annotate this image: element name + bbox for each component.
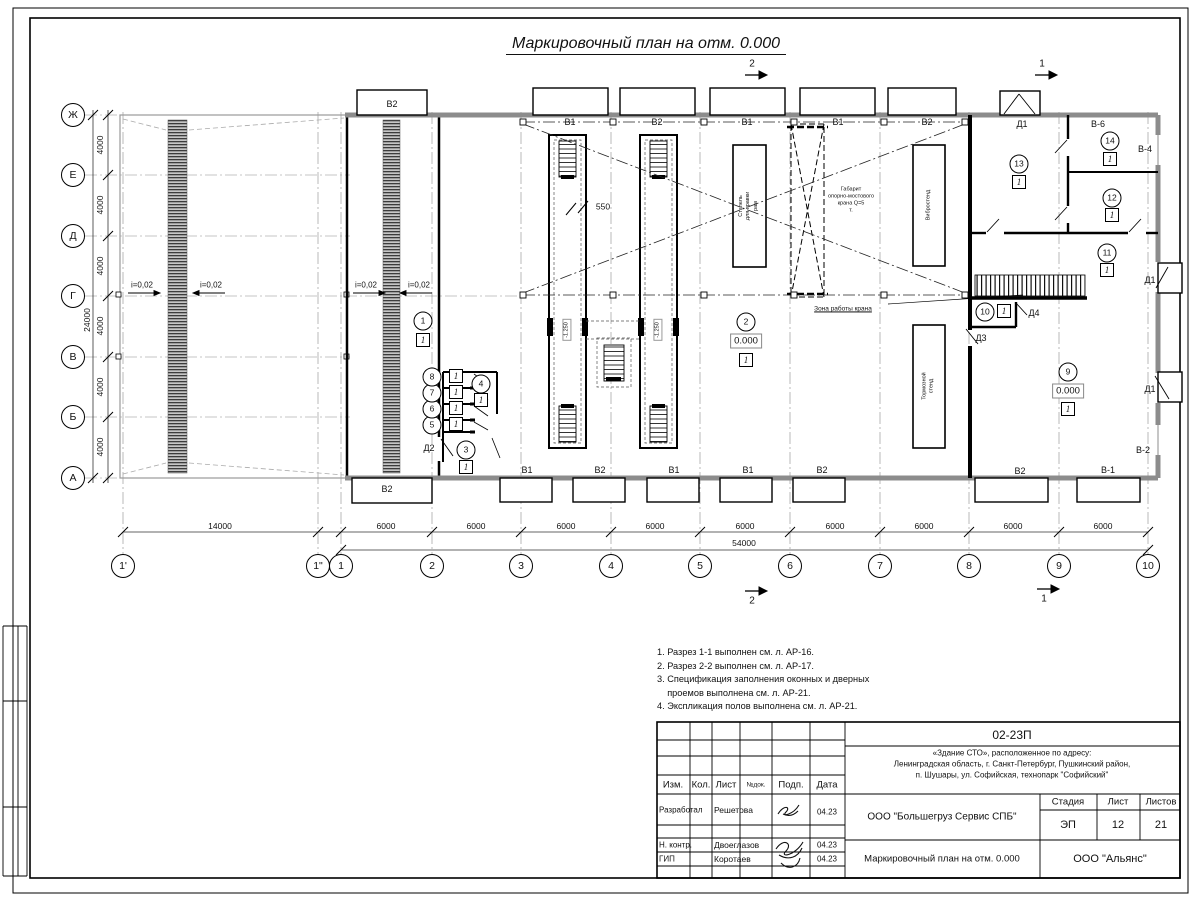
axis-row-bubble: Г: [61, 284, 85, 308]
room-number-bubble: 10: [976, 303, 995, 322]
sheets-label: Листов: [1146, 797, 1177, 808]
axis-col-bubble: 9: [1047, 554, 1071, 578]
dim-text: 4000: [95, 135, 105, 156]
dim-text: 4000: [95, 256, 105, 277]
floor-type-mark: 1: [1061, 402, 1075, 416]
dim-text: 6000: [735, 521, 756, 531]
dim-text: 6000: [825, 521, 846, 531]
dim-text: 4000: [95, 195, 105, 216]
axis-col-bubble: 1: [329, 554, 353, 578]
dim-text: 4000: [95, 377, 105, 398]
floor-type-mark: 1: [416, 333, 430, 347]
note-line: 1. Разрез 1-1 выполнен см. л. АР-16.: [657, 646, 869, 660]
window-label: В1: [832, 118, 843, 128]
axis-row-bubble: Ж: [61, 103, 85, 127]
window-label: В2: [651, 118, 662, 128]
axis-row-bubble: Д: [61, 224, 85, 248]
note-line: 3. Спецификация заполнения оконных и две…: [657, 673, 869, 687]
pit-elevation-label: -1.250: [562, 319, 571, 341]
door-label: Д1: [1144, 385, 1155, 395]
crew-date: 04.23: [817, 841, 837, 850]
crane-extent-label: Габарит опорно-мостового крана Q=5 т.: [828, 187, 874, 216]
note-line: 2. Разрез 2-2 выполнен см. л. АР-17.: [657, 660, 869, 674]
slope-label: i=0,02: [355, 282, 377, 291]
axis-row-bubble: А: [61, 466, 85, 490]
window-label: В2: [1014, 467, 1025, 477]
dim-total-text: 54000: [731, 538, 757, 548]
notes-list: 1. Разрез 1-1 выполнен см. л. АР-16.2. Р…: [657, 646, 869, 714]
doc-number: 02-23П: [992, 728, 1031, 742]
section-mark-label: 1: [1039, 59, 1045, 70]
axis-col-bubble: 1': [111, 554, 135, 578]
crew-date: 04.23: [817, 855, 837, 864]
window-label: В2: [386, 100, 397, 110]
window-label: В2: [594, 466, 605, 476]
org-name: ООО "Альянс": [1073, 853, 1147, 865]
pit-elevation-label: -1.250: [653, 319, 662, 341]
axis-col-bubble: 4: [599, 554, 623, 578]
floor-type-mark: 1: [997, 304, 1011, 318]
window-label: В-2: [1136, 446, 1150, 456]
floor-type-mark: 1: [1100, 263, 1114, 277]
dim-text: 14000: [207, 521, 233, 531]
tb-col-ndok: №док.: [746, 782, 765, 789]
tb-col-podp: Подп.: [778, 780, 803, 791]
stage-value: ЭП: [1060, 819, 1076, 831]
door-label: Д1: [1016, 120, 1027, 130]
axis-row-bubble: Е: [61, 163, 85, 187]
room-number-bubble: 2: [737, 313, 756, 332]
axis-col-bubble: 8: [957, 554, 981, 578]
note-line: 4. Экспликация полов выполнена см. л. АР…: [657, 700, 869, 714]
dim-text: 6000: [376, 521, 397, 531]
axis-col-bubble: 2: [420, 554, 444, 578]
door-label: Д4: [1028, 309, 1039, 319]
axis-col-bubble: 10: [1136, 554, 1160, 578]
dim-total-text: 24000: [82, 307, 92, 333]
tb-col-data: Дата: [816, 780, 837, 791]
project-address-line: п. Шушары, ул. Софийская, технопарк "Соф…: [916, 771, 1109, 780]
floor-type-mark: 1: [474, 393, 488, 407]
axis-col-bubble: 7: [868, 554, 892, 578]
crew-role: ГИП: [659, 855, 675, 864]
window-label: В2: [381, 485, 392, 495]
window-label: В-6: [1091, 120, 1105, 130]
window-label: В1: [564, 118, 575, 128]
dim-text: 4000: [95, 437, 105, 458]
tb-col-kol: Кол.: [692, 780, 711, 791]
axis-col-bubble: 5: [688, 554, 712, 578]
floor-type-mark: 1: [1012, 175, 1026, 189]
window-label: В1: [521, 466, 532, 476]
window-label: В-1: [1101, 466, 1115, 476]
room-number-bubble: 1: [414, 312, 433, 331]
window-label: В2: [921, 118, 932, 128]
stage-label: Стадия: [1052, 797, 1084, 808]
crew-role: Н. контр.: [659, 841, 692, 850]
crane-zone-label: Зона работы крана: [814, 305, 872, 312]
room-number-bubble: 13: [1010, 155, 1029, 174]
dim-text: 6000: [1093, 521, 1114, 531]
crew-date: 04.23: [817, 808, 837, 817]
axis-row-bubble: Б: [61, 405, 85, 429]
section-mark-label: 1: [1041, 594, 1047, 605]
elevation-mark: 0.000: [1052, 384, 1084, 399]
equipment-label: Тормозной стенд: [922, 372, 937, 400]
section-mark-label: 2: [749, 59, 755, 70]
floor-type-mark: 1: [459, 460, 473, 474]
window-label: В2: [816, 466, 827, 476]
floor-type-mark: 1: [739, 353, 753, 367]
text-layer: Маркировочный план на отм. 0.000 ЖЕДГВБА…: [0, 0, 1200, 900]
axis-row-bubble: В: [61, 345, 85, 369]
equipment-label: Вибростенд: [925, 190, 932, 221]
slope-label: i=0,02: [200, 282, 222, 291]
drawing-title: Маркировочный план на отм. 0.000: [864, 854, 1020, 865]
company-name: ООО "Большегруз Сервис СПБ": [867, 812, 1016, 823]
room-number-bubble: 12: [1103, 189, 1122, 208]
window-label: В1: [668, 466, 679, 476]
tb-col-izm: Изм.: [663, 780, 683, 791]
project-address-line: Ленинградская область, г. Санкт-Петербур…: [894, 760, 1131, 769]
room-number-bubble: 4: [472, 375, 491, 394]
dim-text: 6000: [556, 521, 577, 531]
equipment-label: Стапель для правки рам: [738, 192, 760, 220]
room-number-bubble: 11: [1098, 244, 1117, 263]
crew-name: Двоеглазов: [714, 840, 759, 850]
slope-label: i=0,02: [408, 282, 430, 291]
floor-type-mark: 1: [449, 401, 463, 415]
window-label: В1: [742, 466, 753, 476]
elevation-mark: 0.000: [730, 334, 762, 349]
dim-text: 6000: [645, 521, 666, 531]
floor-type-mark: 1: [1105, 208, 1119, 222]
slope-label: i=0,02: [131, 282, 153, 291]
floor-type-mark: 1: [449, 369, 463, 383]
tb-col-list: Лист: [716, 780, 737, 791]
door-label: Д2: [423, 444, 434, 454]
dim-text: 6000: [466, 521, 487, 531]
page-title: Маркировочный план на отм. 0.000: [506, 35, 786, 55]
crew-name: Коротаев: [714, 854, 751, 864]
sheet-label: Лист: [1108, 797, 1129, 808]
section-mark-label: 2: [749, 596, 755, 607]
room-number-bubble: 14: [1101, 132, 1120, 151]
dim-text: 4000: [95, 316, 105, 337]
dim-label: 550: [596, 202, 610, 211]
note-line: проемов выполнена см. л. АР-21.: [657, 687, 869, 701]
floor-type-mark: 1: [1103, 152, 1117, 166]
sheet-number: 12: [1112, 819, 1124, 831]
sheets-total: 21: [1155, 819, 1167, 831]
floor-type-mark: 1: [449, 385, 463, 399]
room-number-bubble: 9: [1059, 363, 1078, 382]
axis-col-bubble: 3: [509, 554, 533, 578]
room-number-bubble: 3: [457, 441, 476, 460]
crew-role: Разработал: [659, 806, 703, 815]
axis-col-bubble: 1": [306, 554, 330, 578]
dim-text: 6000: [914, 521, 935, 531]
project-address-line: «Здание СТО», расположенное по адресу:: [933, 749, 1092, 758]
window-label: В1: [741, 118, 752, 128]
floor-type-mark: 1: [449, 417, 463, 431]
dim-text: 6000: [1003, 521, 1024, 531]
room-number-bubble: 8: [423, 368, 442, 387]
drawing-sheet: Маркировочный план на отм. 0.000 ЖЕДГВБА…: [0, 0, 1200, 900]
crew-name: Решетова: [714, 805, 753, 815]
door-label: Д3: [975, 334, 986, 344]
window-label: В-4: [1138, 145, 1152, 155]
door-label: Д1: [1144, 276, 1155, 286]
axis-col-bubble: 6: [778, 554, 802, 578]
